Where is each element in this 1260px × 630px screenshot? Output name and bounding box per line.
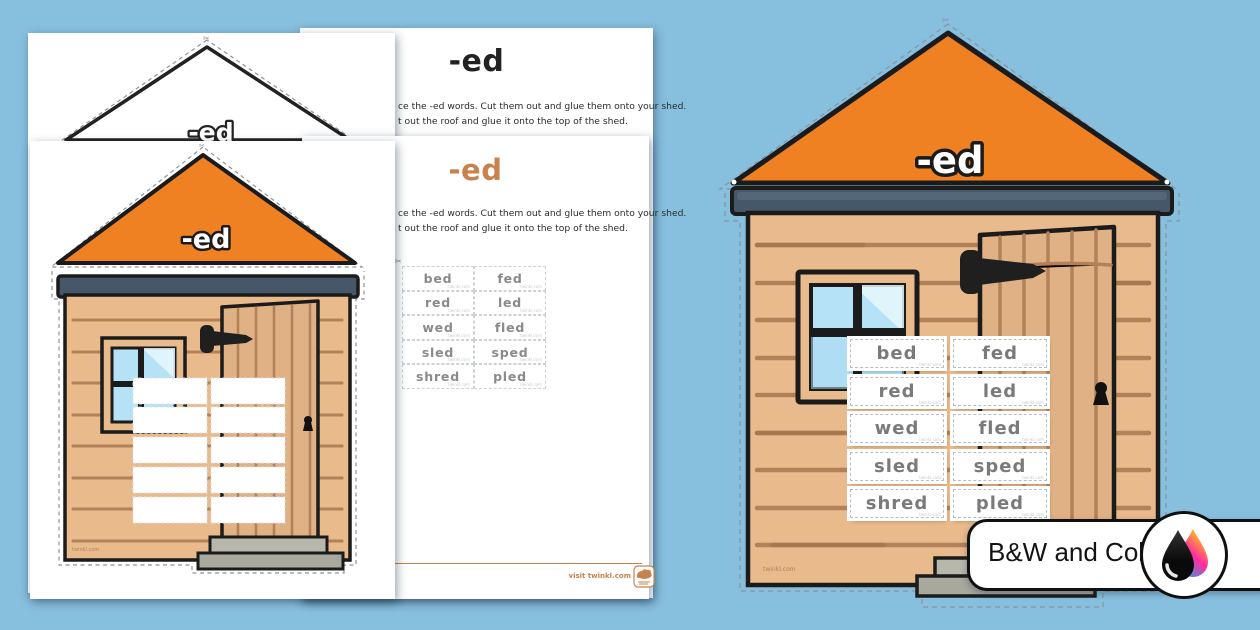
scissors-mark-icon: ✂ [395, 257, 402, 266]
big-roof-suffix-label: -ed [917, 139, 984, 182]
word-card: pledtwinkl.com [953, 489, 1047, 518]
word-cell: fedtwinkl.com [474, 266, 546, 291]
word-cell: wedtwinkl.com [402, 315, 474, 340]
blank-word-card [211, 378, 285, 404]
watermark: twinkl.com [763, 566, 796, 573]
blank-word-card [133, 467, 207, 493]
blank-word-card [133, 497, 207, 523]
word-cell: pledtwinkl.com [474, 364, 546, 389]
instruction-text: ce the -ed words. Cut them out and glue … [398, 99, 686, 129]
word-cell: sledtwinkl.com [402, 340, 474, 365]
scissors-mark-icon: ✂ [203, 34, 210, 43]
word-card: sledtwinkl.com [850, 452, 944, 481]
watermark: twinkl.com [1022, 475, 1044, 480]
instruction-line-1: ce the -ed words. Cut them out and glue … [398, 99, 686, 114]
watermark: twinkl.com [520, 357, 542, 362]
cut-dot [1165, 180, 1170, 185]
watermark: twinkl.com [1022, 400, 1044, 405]
word-cut-out-table: bedtwinkl.com fedtwinkl.com redtwinkl.co… [402, 266, 546, 389]
hinge-icon [200, 325, 214, 353]
watermark: twinkl.com [448, 284, 470, 289]
blank-word-card [133, 437, 207, 463]
blank-word-card [211, 467, 285, 493]
mini-steps [198, 537, 343, 569]
watermark: twinkl.com [1022, 362, 1044, 367]
scissors-mark-icon: ✂ [199, 142, 205, 150]
watermark: twinkl.com [1022, 512, 1044, 517]
beam-highlight [737, 192, 1167, 200]
watermark: twinkl.com [919, 400, 941, 405]
watermark: twinkl.com [520, 382, 542, 387]
word-cell: bedtwinkl.com [402, 266, 474, 291]
ink-drops-icon [1147, 518, 1221, 592]
word-card: ledtwinkl.com [953, 377, 1047, 406]
twinkl-logo-icon [633, 565, 655, 588]
watermark: twinkl.com [919, 362, 941, 367]
hinge-icon [960, 250, 982, 294]
word-cell: ledtwinkl.com [474, 291, 546, 316]
watermark: twinkl.com [448, 382, 470, 387]
cut-dot [732, 180, 737, 185]
blank-word-card [133, 407, 207, 433]
word-cell: redtwinkl.com [402, 291, 474, 316]
watermark: twinkl.com [919, 512, 941, 517]
blank-word-card [211, 437, 285, 463]
word-card: shredtwinkl.com [850, 489, 944, 518]
watermark: twinkl.com [520, 284, 542, 289]
watermark: twinkl.com [1022, 437, 1044, 442]
blank-word-card [211, 407, 285, 433]
watermark: twinkl.com [448, 357, 470, 362]
mini-shed-drawing: ✂ -ed [30, 141, 395, 599]
watermark: twinkl.com [520, 333, 542, 338]
resource-preview: -ed ce the -ed words. Cut them out and g… [0, 0, 1260, 630]
instruction-line-2: t out the roof and glue it onto the top … [398, 114, 686, 129]
word-card: redtwinkl.com [850, 377, 944, 406]
watermark: twinkl.com [448, 333, 470, 338]
word-cell: fledtwinkl.com [474, 315, 546, 340]
word-card: spedtwinkl.com [953, 452, 1047, 481]
mini-roof-suffix-label: -ed [182, 224, 231, 255]
instruction-line-1: ce the -ed words. Cut them out and glue … [398, 206, 686, 221]
ink-drops-badge [1140, 511, 1228, 599]
word-card: wedtwinkl.com [850, 414, 944, 443]
watermark: twinkl.com [448, 308, 470, 313]
color-craft-page: ✂ -ed [30, 141, 395, 599]
word-cell: spedtwinkl.com [474, 340, 546, 365]
visit-link: visit twinkl.com [569, 572, 631, 580]
watermark: twinkl.com [520, 308, 542, 313]
word-cell: shredtwinkl.com [402, 364, 474, 389]
blank-word-card [211, 497, 285, 523]
word-card: bedtwinkl.com [850, 339, 944, 368]
word-card: fedtwinkl.com [953, 339, 1047, 368]
watermark: twinkl.com [72, 547, 99, 553]
instruction-text: ce the -ed words. Cut them out and glue … [398, 206, 686, 236]
word-card: fledtwinkl.com [953, 414, 1047, 443]
blank-word-card [133, 378, 207, 404]
watermark: twinkl.com [919, 437, 941, 442]
watermark: twinkl.com [919, 475, 941, 480]
big-beam [732, 188, 1172, 214]
instruction-line-2: t out the roof and glue it onto the top … [398, 221, 686, 236]
scissors-mark-icon: ✂ [942, 16, 950, 26]
